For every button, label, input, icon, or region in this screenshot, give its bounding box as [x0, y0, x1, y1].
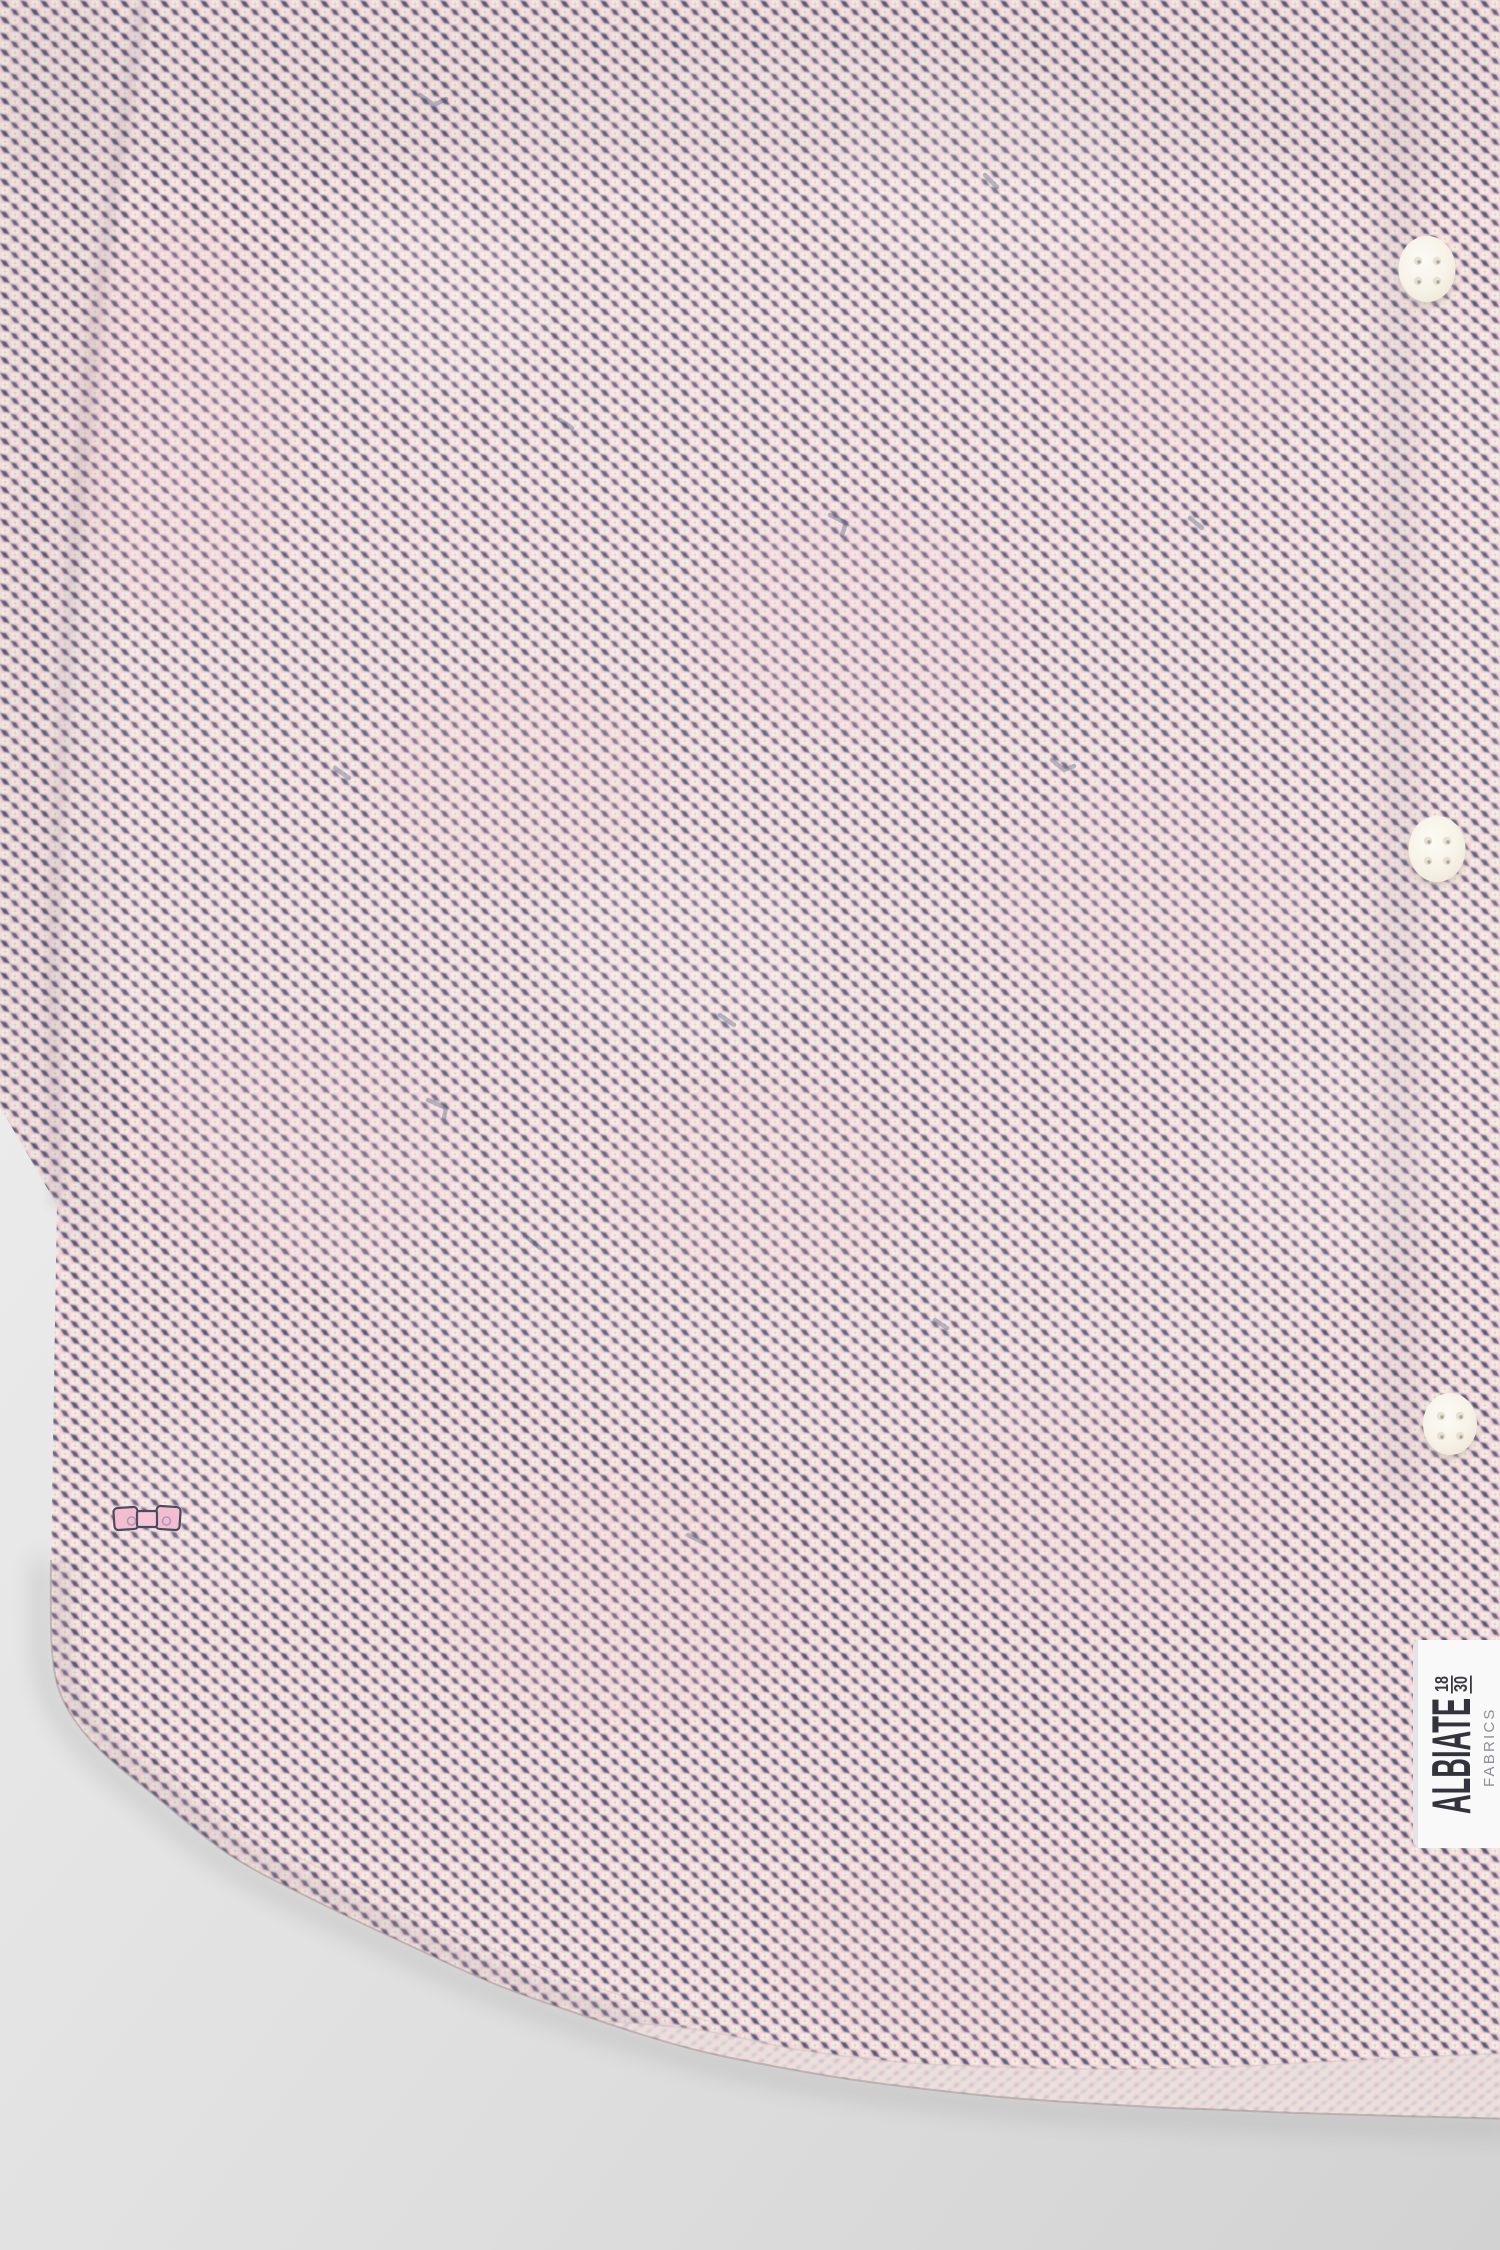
svg-text:30: 30 [1451, 1676, 1471, 1692]
svg-text:ALBIATE: ALBIATE [1420, 1698, 1482, 1814]
svg-text:18: 18 [1432, 1676, 1452, 1692]
svg-text:FABRICS: FABRICS [1481, 1707, 1498, 1787]
